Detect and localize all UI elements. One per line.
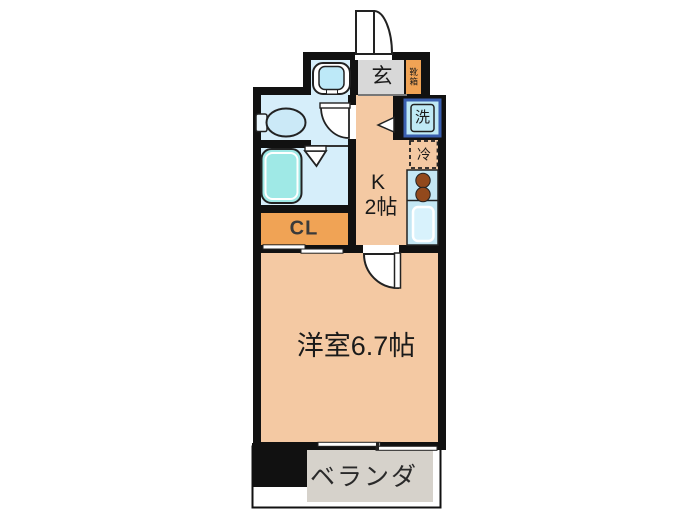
kitchen-sink-icon [413, 207, 434, 241]
genkan-step-line [358, 94, 407, 96]
stove-burner-icon [416, 173, 430, 187]
refrigerator-label: 冷 [417, 147, 431, 162]
bathroom-door-leaf [320, 103, 350, 108]
closet-label: CL [290, 219, 319, 240]
veranda-label: ベランダ [310, 464, 418, 490]
washbasin-icon [313, 63, 350, 94]
entrance-door-swing [374, 11, 392, 54]
wall-block [252, 443, 307, 487]
room-door-opening [363, 245, 399, 253]
bathtub-icon [262, 149, 302, 203]
kitchen-counter [407, 170, 438, 245]
shoe-box-label: 靴箱 [409, 68, 418, 87]
room-door-leaf [395, 253, 401, 288]
western-room-label: 洋室6.7帖 [297, 332, 416, 360]
floor-plan-drawing [0, 0, 700, 525]
genkan-label: 玄 [372, 66, 393, 88]
stove-burner-icon [416, 187, 430, 201]
entrance-door-leaf [356, 11, 374, 54]
washing-machine-label: 洗 [415, 110, 430, 126]
floor-plan: 玄 靴箱 洗 冷 K 2帖 CL 洋室6.7帖 ベランダ [0, 0, 700, 525]
